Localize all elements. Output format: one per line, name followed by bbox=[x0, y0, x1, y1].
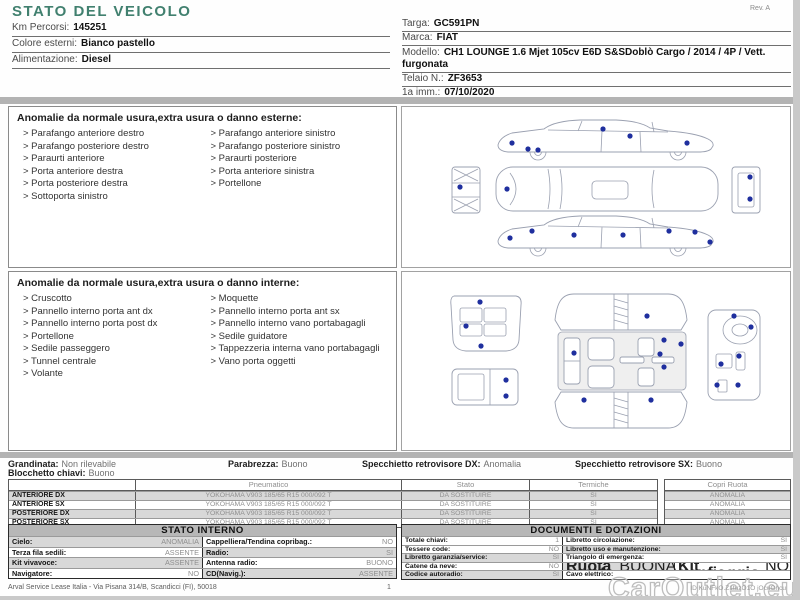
doc-cell: Kit gonfiaggio:NO bbox=[675, 563, 790, 571]
interior-state-table: STATO INTERNO Cielo:ANOMALIA Cappelliera… bbox=[8, 524, 397, 579]
tyre-row: POSTERIORE DX YOKOHAMA V903 185/65 R15 0… bbox=[9, 509, 657, 518]
doc-cell: Libretto uso e manutenzione:SI bbox=[562, 546, 790, 554]
vehicle-info-right: Targa:GC591PN Marca:FIAT Modello:CH1 LOU… bbox=[402, 18, 791, 101]
tyre-row: ANTERIORE SX YOKOHAMA V903 185/65 R15 00… bbox=[9, 500, 657, 509]
tyre-row: ANTERIORE DX YOKOHAMA V903 185/65 R15 00… bbox=[9, 491, 657, 500]
si-cell: CD(Navig.):ASSENTE bbox=[202, 569, 396, 579]
wheel-cover-cell: ANOMALIA bbox=[665, 491, 790, 500]
interior-anomalies-right-list: > Moquette> Pannello interno porta ant s… bbox=[203, 293, 391, 381]
exterior-anomalies-header: Anomalie da normale usura,extra usura o … bbox=[17, 112, 390, 124]
doc-row: Totale chiavi:1 Libretto circolazione:SI bbox=[402, 536, 790, 545]
interior-damage-diagram bbox=[401, 271, 791, 451]
summary-specchietto-sx: Specchietto retrovisore SX:Buono bbox=[575, 459, 722, 469]
tyre-spec-cell: YOKOHAMA V903 185/65 R15 000/092 T bbox=[135, 501, 401, 509]
scan-edge-right bbox=[793, 0, 800, 600]
interior-state-row: Kit vivavoce:ASSENTE Antenna radio:BUONO bbox=[9, 557, 396, 568]
interior-anomalies-left-list: > Cruscotto> Pannello interno porta ant … bbox=[15, 293, 203, 381]
doc-cell: Ruota scorta:BUONA bbox=[563, 563, 675, 571]
cell-value: SI bbox=[781, 537, 787, 545]
exterior-anomalies-lists: > Parafango anteriore destro> Parafango … bbox=[15, 128, 390, 203]
si-cell: Navigatore:NO bbox=[9, 569, 202, 579]
cell-label: Catene da neve: bbox=[405, 563, 457, 571]
anomaly-item: > Portellone bbox=[211, 178, 391, 191]
tyre-table: Pneumatico Stato Termiche ANTERIORE DX Y… bbox=[8, 479, 658, 528]
field-label: Targa: bbox=[402, 18, 430, 29]
summary-label: Specchietto retrovisore SX: bbox=[575, 459, 693, 469]
revision-label: Rev. A bbox=[750, 5, 770, 12]
field-colore-esterni: Colore esterni:Bianco pastello bbox=[12, 37, 390, 53]
field-targa: Targa:GC591PN bbox=[402, 18, 791, 32]
tyre-termiche-header: Termiche bbox=[529, 480, 657, 490]
field-label: Telaio N.: bbox=[402, 73, 444, 84]
car-side-view bbox=[498, 120, 713, 160]
tyre-winter-cell: SI bbox=[529, 510, 657, 518]
document-id-code: ID KuNFkO.Z1tuzO1O jOcuOhcu bbox=[690, 585, 786, 592]
anomaly-item: > Volante bbox=[23, 368, 203, 381]
anomaly-item: > Sottoporta sinistro bbox=[23, 191, 203, 204]
wheel-cover-cell: ANOMALIA bbox=[665, 509, 790, 518]
tyre-position-header bbox=[9, 480, 135, 490]
cell-value: NO bbox=[765, 563, 789, 571]
wheel-cover-table: Copri Ruota ANOMALIA ANOMALIA ANOMALIA A… bbox=[664, 479, 791, 528]
anomaly-item: > Porta posteriore destra bbox=[23, 178, 203, 191]
footer-company-address: Arval Service Lease Italia - Via Pisana … bbox=[8, 584, 217, 591]
field-modello: Modello:CH1 LOUNGE 1.6 Mjet 105cv E6D S&… bbox=[402, 46, 791, 73]
si-cell: Terza fila sedili:ASSENTE bbox=[9, 548, 202, 558]
cell-label: Cappelliera/Tendina copribag.: bbox=[206, 537, 312, 547]
anomaly-item: > Moquette bbox=[211, 293, 391, 306]
cell-value: SI bbox=[553, 571, 559, 579]
interior-state-title: STATO INTERNO bbox=[9, 525, 396, 536]
cell-label: Totale chiavi: bbox=[405, 537, 448, 545]
cell-label: Ruota scorta: bbox=[566, 563, 619, 571]
cell-value: SI bbox=[781, 554, 787, 562]
anomaly-item: > Paraurti posteriore bbox=[211, 153, 391, 166]
tyre-state-cell: DA SOSTITUIRE bbox=[401, 492, 529, 500]
summary-label: Specchietto retrovisore DX: bbox=[362, 459, 481, 469]
car-exterior-views-diagram bbox=[402, 107, 790, 267]
summary-parabrezza: Parabrezza:Buono bbox=[228, 459, 308, 469]
anomaly-item: > Sedile guidatore bbox=[211, 331, 391, 344]
tyre-pneumatico-header: Pneumatico bbox=[135, 480, 401, 490]
field-value: GC591PN bbox=[434, 18, 480, 29]
interior-anomalies-box: Anomalie da normale usura,extra usura o … bbox=[8, 271, 397, 451]
interior-state-row: Terza fila sedili:ASSENTE Radio:SI bbox=[9, 547, 396, 558]
field-label: Alimentazione: bbox=[12, 54, 78, 65]
cell-value: SI bbox=[553, 554, 559, 562]
exterior-anomalies-right-list: > Parafango anteriore sinistro> Parafang… bbox=[203, 128, 391, 203]
doc-cell: Catene da neve:NO bbox=[402, 563, 562, 571]
field-label: Modello: bbox=[402, 47, 440, 58]
doc-cell: Tessere code:NO bbox=[402, 546, 562, 554]
tyre-winter-cell: SI bbox=[529, 492, 657, 500]
section-divider bbox=[0, 452, 800, 458]
anomaly-item: > Sedile passeggero bbox=[23, 343, 203, 356]
vehicle-condition-report: STATO DEL VEICOLO Rev. A Km Percorsi:145… bbox=[0, 0, 800, 600]
anomaly-item: > Porta anteriore destra bbox=[23, 166, 203, 179]
field-value: 145251 bbox=[73, 22, 106, 33]
cell-value: NO bbox=[549, 563, 559, 571]
cell-label: Libretto uso e manutenzione: bbox=[566, 546, 661, 554]
summary-value: Buono bbox=[696, 459, 722, 469]
tailgate-view bbox=[452, 369, 518, 405]
cell-label: Codice autoradio: bbox=[405, 571, 463, 579]
summary-specchietto-dx: Specchietto retrovisore DX:Anomalia bbox=[362, 459, 521, 469]
cell-label: Triangolo di emergenza: bbox=[566, 554, 644, 562]
cell-value: SI bbox=[781, 546, 787, 554]
summary-label: Blocchetto chiavi: bbox=[8, 468, 86, 478]
exterior-anomalies-left-list: > Parafango anteriore destro> Parafango … bbox=[15, 128, 203, 203]
tyre-spec-cell: YOKOHAMA V903 185/65 R15 000/092 T bbox=[135, 492, 401, 500]
footer-page-number: 1 bbox=[387, 584, 391, 591]
field-label: Marca: bbox=[402, 32, 433, 43]
cell-value: ASSENTE bbox=[359, 569, 393, 579]
cell-value: ANOMALIA bbox=[161, 537, 199, 547]
field-value: ZF3653 bbox=[448, 73, 482, 84]
cell-label: Libretto circolazione: bbox=[566, 537, 635, 545]
si-cell: Antenna radio:BUONO bbox=[202, 558, 396, 568]
cell-value: NO bbox=[549, 546, 559, 554]
field-value: FIAT bbox=[437, 32, 458, 43]
exterior-damage-diagram bbox=[401, 106, 791, 268]
summary-blocchetto-chiavi: Blocchetto chiavi:Buono bbox=[8, 468, 115, 478]
summary-value: Buono bbox=[89, 468, 115, 478]
section-divider bbox=[0, 97, 800, 104]
field-label: Colore esterni: bbox=[12, 38, 77, 49]
doc-row: Libretto garanzia/service:SI Triangolo d… bbox=[402, 553, 790, 562]
cell-label: Navigatore: bbox=[12, 569, 52, 579]
si-cell: Radio:SI bbox=[202, 548, 396, 558]
cell-label: Kit vivavoce: bbox=[12, 558, 57, 568]
interior-state-row: Cielo:ANOMALIA Cappelliera/Tendina copri… bbox=[9, 536, 396, 547]
doc-row: Catene da neve:NO Ruota scorta:BUONA Kit… bbox=[402, 562, 790, 571]
cell-value: 1 bbox=[555, 537, 559, 545]
cell-label: Libretto garanzia/service: bbox=[405, 554, 487, 562]
trunk-view bbox=[451, 296, 521, 351]
cell-label: Cielo: bbox=[12, 537, 32, 547]
field-marca: Marca:FIAT bbox=[402, 32, 791, 46]
page-title: STATO DEL VEICOLO bbox=[12, 3, 191, 20]
cell-value: SI bbox=[386, 548, 393, 558]
car-top-view bbox=[496, 167, 718, 211]
car-interior-views-diagram bbox=[402, 272, 790, 450]
summary-value: Anomalia bbox=[484, 459, 522, 469]
tyre-position-cell: ANTERIORE SX bbox=[9, 501, 135, 509]
exterior-anomalies-box: Anomalie da normale usura,extra usura o … bbox=[8, 106, 397, 268]
field-km-percorsi: Km Percorsi:145251 bbox=[12, 21, 390, 37]
cell-label: CD(Navig.): bbox=[206, 569, 246, 579]
cell-value: ASSENTE bbox=[165, 548, 199, 558]
vehicle-info-left: Km Percorsi:145251 Colore esterni:Bianco… bbox=[12, 21, 390, 69]
summary-value: Buono bbox=[282, 459, 308, 469]
scan-edge-bottom bbox=[0, 596, 800, 600]
si-cell: Kit vivavoce:ASSENTE bbox=[9, 558, 202, 568]
anomaly-item: > Parafango posteriore sinistro bbox=[211, 141, 391, 154]
cell-value: NO bbox=[188, 569, 199, 579]
doc-cell: Codice autoradio:SI bbox=[402, 571, 562, 579]
field-label: Km Percorsi: bbox=[12, 22, 69, 33]
doc-cell: Libretto garanzia/service:SI bbox=[402, 554, 562, 562]
anomaly-item: > Paraurti anteriore bbox=[23, 153, 203, 166]
anomaly-item: > Parafango posteriore destro bbox=[23, 141, 203, 154]
anomaly-item: > Pannello interno porta post dx bbox=[23, 318, 203, 331]
cell-label: Tessere code: bbox=[405, 546, 450, 554]
doc-cell: Libretto circolazione:SI bbox=[562, 537, 790, 545]
tyre-state-cell: DA SOSTITUIRE bbox=[401, 510, 529, 518]
tyre-winter-cell: SI bbox=[529, 501, 657, 509]
si-cell: Cielo:ANOMALIA bbox=[9, 537, 202, 547]
cell-label: Radio: bbox=[206, 548, 229, 558]
anomaly-item: > Portellone bbox=[23, 331, 203, 344]
doc-cell-split: Ruota scorta:BUONA Kit gonfiaggio:NO bbox=[562, 563, 790, 571]
tyre-state-cell: DA SOSTITUIRE bbox=[401, 501, 529, 509]
documents-equipment-title: DOCUMENTI E DOTAZIONI bbox=[402, 525, 790, 536]
anomaly-item: > Tunnel centrale bbox=[23, 356, 203, 369]
cell-label: Antenna radio: bbox=[206, 558, 258, 568]
field-telaio: Telaio N.:ZF3653 bbox=[402, 73, 791, 87]
anomaly-item: > Parafango anteriore sinistro bbox=[211, 128, 391, 141]
field-value: CH1 LOUNGE 1.6 Mjet 105cv E6D S&SDoblò C… bbox=[402, 47, 765, 70]
field-value: Diesel bbox=[82, 54, 111, 65]
car-rear-view bbox=[732, 167, 760, 213]
anomaly-item: > Tappezzeria interna vano portabagagli bbox=[211, 343, 391, 356]
anomaly-item: > Parafango anteriore destro bbox=[23, 128, 203, 141]
cell-label: Cavo elettrico: bbox=[566, 571, 613, 579]
summary-label: Parabrezza: bbox=[228, 459, 279, 469]
interior-anomalies-lists: > Cruscotto> Pannello interno porta ant … bbox=[15, 293, 390, 381]
cell-value: NO bbox=[382, 537, 393, 547]
tyre-position-cell: ANTERIORE DX bbox=[9, 492, 135, 500]
field-alimentazione: Alimentazione:Diesel bbox=[12, 53, 390, 69]
car-front-view bbox=[452, 167, 480, 213]
interior-anomalies-header: Anomalie da normale usura,extra usura o … bbox=[17, 277, 390, 289]
anomaly-item: > Vano porta oggetti bbox=[211, 356, 391, 369]
cell-label: Kit gonfiaggio: bbox=[678, 563, 765, 571]
doc-cell: Triangolo di emergenza:SI bbox=[562, 554, 790, 562]
anomaly-item: > Pannello interno porta ant sx bbox=[211, 306, 391, 319]
tyre-table-header: Pneumatico Stato Termiche bbox=[9, 480, 657, 491]
tyre-stato-header: Stato bbox=[401, 480, 529, 490]
doc-row: Tessere code:NO Libretto uso e manutenzi… bbox=[402, 545, 790, 554]
tyre-spec-cell: YOKOHAMA V903 185/65 R15 000/092 T bbox=[135, 510, 401, 518]
doc-cell: Totale chiavi:1 bbox=[402, 537, 562, 545]
tyre-position-cell: POSTERIORE DX bbox=[9, 510, 135, 518]
anomaly-item: > Pannello interno porta ant dx bbox=[23, 306, 203, 319]
anomaly-item: > Porta anteriore sinistra bbox=[211, 166, 391, 179]
si-cell: Cappelliera/Tendina copribag.:NO bbox=[202, 537, 396, 547]
anomaly-item: > Pannello interno vano portabagagli bbox=[211, 318, 391, 331]
cell-label: Terza fila sedili: bbox=[12, 548, 66, 558]
wheel-cover-header: Copri Ruota bbox=[665, 480, 790, 491]
cabin-floor-plan bbox=[555, 294, 687, 428]
cell-value: BUONO bbox=[366, 558, 393, 568]
interior-state-row: Navigatore:NO CD(Navig.):ASSENTE bbox=[9, 568, 396, 579]
cell-value: BUONA bbox=[619, 563, 676, 571]
cell-value: ASSENTE bbox=[165, 558, 199, 568]
anomaly-item: > Cruscotto bbox=[23, 293, 203, 306]
wheel-cover-cell: ANOMALIA bbox=[665, 500, 790, 509]
field-value: Bianco pastello bbox=[81, 38, 155, 49]
